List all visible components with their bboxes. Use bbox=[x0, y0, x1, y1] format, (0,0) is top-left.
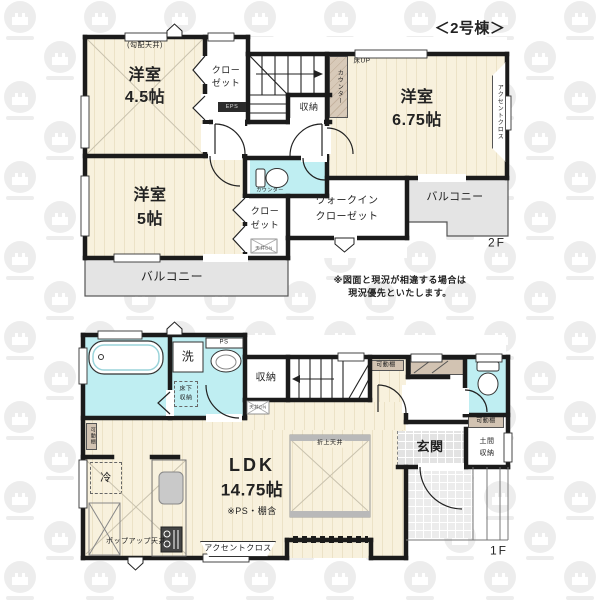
room-5-name: 洋室 bbox=[133, 187, 166, 205]
wash-label: 洗 bbox=[182, 350, 195, 363]
eps-label: EPS bbox=[226, 104, 239, 110]
ps-label: PS bbox=[219, 340, 228, 347]
room-45-name: 洋室 bbox=[128, 67, 161, 85]
disclaimer-line2: 現況優先といたします。 bbox=[348, 289, 452, 299]
ceiling-hatch-1f-label: 天井DN bbox=[249, 406, 267, 411]
fixtures bbox=[89, 102, 499, 556]
toilet-2f-bowl bbox=[266, 169, 288, 188]
balcony-right-label: バルコニー bbox=[426, 191, 483, 203]
ldk-name: LDK bbox=[229, 456, 275, 476]
storage-1f-label: 収納 bbox=[256, 373, 277, 384]
building-label: ＜2号棟＞ bbox=[435, 21, 506, 38]
genkan-label: 玄関 bbox=[416, 440, 443, 454]
fridge-label: 冷 bbox=[100, 472, 112, 484]
room-45-size: 4.5帖 bbox=[125, 89, 165, 107]
room-675-size: 6.75帖 bbox=[392, 112, 442, 130]
movable-shelf-left-label: 可動棚 bbox=[89, 427, 95, 445]
ldk-size: 14.75帖 bbox=[221, 482, 284, 501]
popup-ceiling-label: ポップアップ天井 bbox=[106, 538, 166, 546]
stairs-2f-arrow bbox=[314, 70, 323, 78]
floor-plan-page: ＜2号棟＞ 洋室 4.5帖 (勾配天井) クロー ゼット EPS 収納 カウンタ… bbox=[0, 0, 600, 600]
accent-cross-2f-label: アクセントクロス bbox=[496, 84, 503, 140]
room-5-size: 5帖 bbox=[137, 211, 163, 229]
floor-up-label: 床UP bbox=[353, 57, 370, 64]
toilet-1f-bowl bbox=[478, 373, 498, 395]
ldk-note: ※PS・棚含 bbox=[227, 507, 277, 517]
toilet-2f-tank bbox=[256, 169, 265, 187]
coffered-ceiling-label: 折上天井 bbox=[315, 441, 345, 448]
toilet-2f-counter-label: カウンター bbox=[256, 188, 284, 194]
plan-linework bbox=[0, 0, 600, 600]
movable-shelf-right-label: 可動棚 bbox=[476, 419, 496, 426]
kitchen-cupboard bbox=[89, 503, 120, 555]
closet-top-label-2: ゼット bbox=[212, 79, 241, 89]
stairs-1f-arrow bbox=[292, 375, 300, 383]
floor2-label: 2F bbox=[488, 236, 506, 249]
disclaimer-line1: ※図面と現況が相違する場合は bbox=[334, 276, 467, 286]
underfloor-label-2: 収納 bbox=[179, 396, 192, 403]
wic-label-2: クローゼット bbox=[316, 212, 379, 223]
kitchen-sink bbox=[159, 472, 183, 504]
counter-2f-label: カウンター bbox=[336, 70, 343, 105]
balcony-bottom-label: バルコニー bbox=[141, 270, 203, 283]
room-675-name: 洋室 bbox=[400, 89, 433, 107]
closet-bottom-label-1: クロー bbox=[251, 207, 280, 217]
ceiling-hatch-2f-label: 天井DN bbox=[255, 247, 273, 252]
stairs-1f bbox=[299, 357, 370, 400]
toilet-1f-tank bbox=[477, 362, 499, 371]
room-45-ceiling-note: (勾配天井) bbox=[127, 42, 163, 50]
doma-label-1: 土間 bbox=[480, 438, 495, 446]
doma-label-2: 収納 bbox=[480, 450, 495, 458]
storage-2f-label: 収納 bbox=[299, 103, 318, 113]
movable-shelf-top-label: 可動棚 bbox=[376, 363, 396, 370]
accent-cross-1f-label: アクセントクロス bbox=[204, 545, 272, 554]
shoe-shelf-diagonals bbox=[414, 361, 448, 373]
closet-top-label-1: クロー bbox=[212, 66, 241, 76]
wic-label-1: ウォークイン bbox=[316, 196, 379, 207]
underfloor-label-1: 床下 bbox=[179, 387, 192, 394]
floor1-label: 1F bbox=[490, 544, 508, 557]
closet-bottom-label-2: ゼット bbox=[251, 221, 280, 231]
